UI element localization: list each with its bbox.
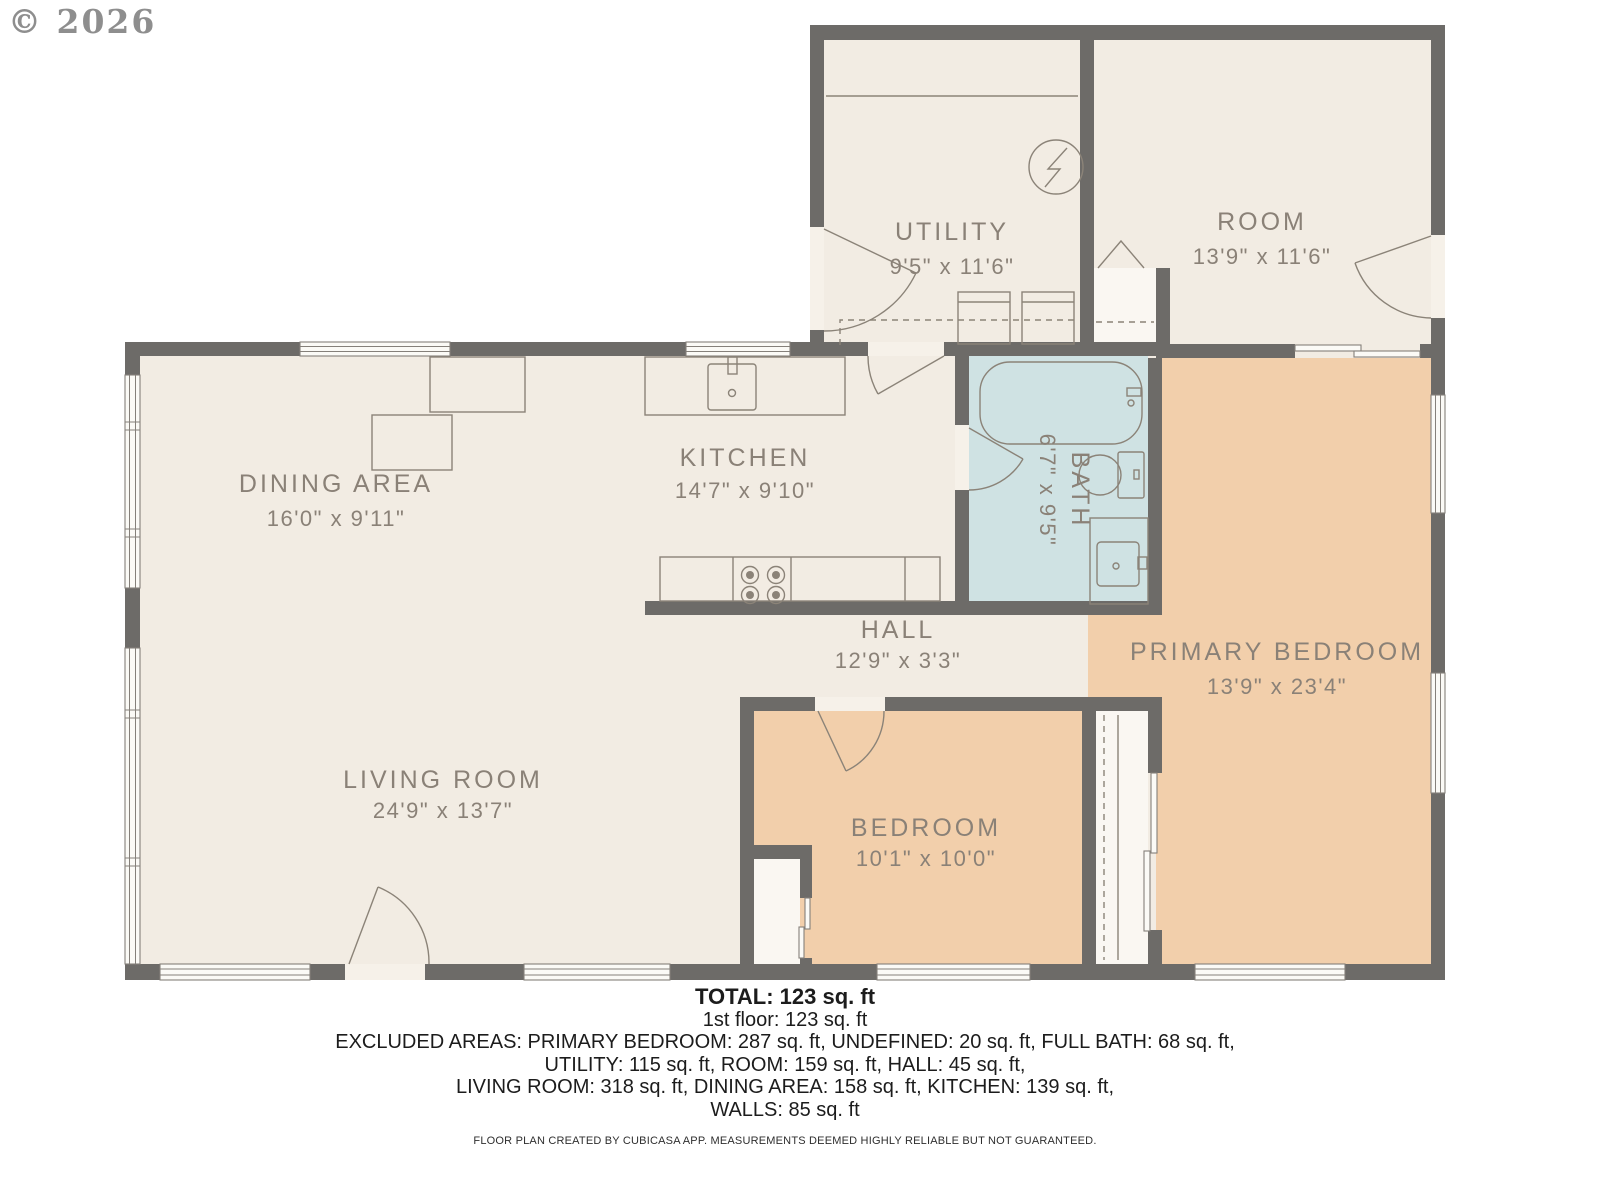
bedroom-dims: 10'1" x 10'0"	[856, 846, 996, 871]
room-label: ROOM	[1217, 208, 1307, 236]
window	[1431, 673, 1445, 793]
bath-dims: 6'7" x 9'5"	[1035, 434, 1060, 547]
living-room-dims: 24'9" x 13'7"	[373, 798, 513, 823]
bedroom-label: BEDROOM	[851, 814, 1001, 842]
excluded-areas-line-1: EXCLUDED AREAS: PRIMARY BEDROOM: 287 sq.…	[0, 1031, 1570, 1054]
area-summary: TOTAL: 123 sq. ft 1st floor: 123 sq. ft …	[0, 986, 1570, 1153]
excluded-areas-line-3: LIVING ROOM: 318 sq. ft, DINING AREA: 15…	[0, 1076, 1570, 1099]
kitchen-dims: 14'7" x 9'10"	[675, 478, 815, 503]
primary-bedroom-dims: 13'9" x 23'4"	[1207, 674, 1347, 699]
bath-label: BATH	[1066, 452, 1094, 529]
dining-area-dims: 16'0" x 9'11"	[267, 506, 406, 531]
primary-bedroom-label: PRIMARY BEDROOM	[1130, 638, 1424, 666]
window	[877, 964, 1030, 980]
excluded-areas-line-4: WALLS: 85 sq. ft	[0, 1099, 1570, 1122]
hall-label: HALL	[861, 616, 936, 644]
window	[1431, 395, 1445, 513]
first-floor-area: 1st floor: 123 sq. ft	[0, 1009, 1570, 1032]
window	[160, 964, 310, 980]
window	[524, 964, 670, 980]
utility-dims: 9'5" x 11'6"	[890, 254, 1015, 279]
excluded-areas-line-2: UTILITY: 115 sq. ft, ROOM: 159 sq. ft, H…	[0, 1054, 1570, 1077]
total-area: TOTAL: 123 sq. ft	[0, 986, 1570, 1009]
disclaimer: FLOOR PLAN CREATED BY CUBICASA APP. MEAS…	[0, 1130, 1570, 1153]
hall-dims: 12'9" x 3'3"	[835, 648, 961, 673]
kitchen-label: KITCHEN	[680, 444, 811, 472]
window	[1195, 964, 1345, 980]
room-dims: 13'9" x 11'6"	[1193, 244, 1332, 269]
floor-plan-page: © 2026	[0, 0, 1600, 1200]
room-closet-floor	[1094, 268, 1156, 348]
window	[300, 342, 450, 356]
bedroom-closet-floor	[752, 857, 800, 964]
utility-label: UTILITY	[895, 218, 1009, 246]
living-room-label: LIVING ROOM	[343, 766, 543, 794]
window	[686, 342, 790, 356]
dining-area-label: DINING AREA	[239, 470, 433, 498]
window	[125, 648, 140, 964]
window	[125, 375, 140, 588]
